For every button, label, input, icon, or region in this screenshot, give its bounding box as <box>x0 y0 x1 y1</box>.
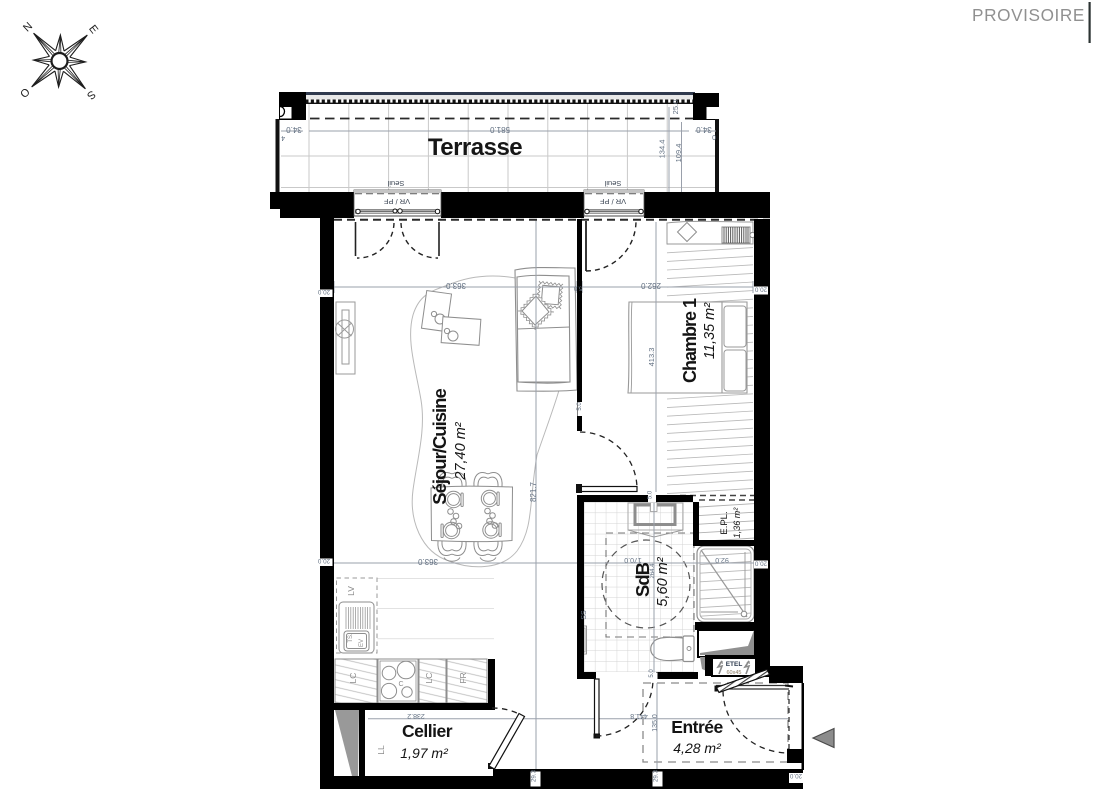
svg-text:Séjour/Cuisine: Séjour/Cuisine <box>429 389 450 505</box>
svg-text:5.0: 5.0 <box>649 669 655 678</box>
svg-text:238.2: 238.2 <box>407 712 425 719</box>
svg-text:29.3: 29.3 <box>531 769 538 782</box>
svg-text:60x45: 60x45 <box>727 670 742 676</box>
svg-text:5.0: 5.0 <box>573 285 582 291</box>
svg-text:29.3: 29.3 <box>653 769 660 782</box>
svg-text:363.0: 363.0 <box>417 557 438 566</box>
svg-text:1,97 m²: 1,97 m² <box>400 745 449 761</box>
svg-text:Entrée: Entrée <box>671 717 723 737</box>
svg-text:5.0: 5.0 <box>648 490 654 499</box>
svg-text:TS.: TS. <box>348 633 354 643</box>
svg-text:LC: LC <box>424 673 434 684</box>
svg-text:134.4: 134.4 <box>658 140 667 159</box>
svg-text:264.4: 264.4 <box>650 563 656 579</box>
svg-text:ETEL: ETEL <box>726 661 743 668</box>
svg-text:4,28 m²: 4,28 m² <box>673 740 722 756</box>
svg-text:Seuil: Seuil <box>387 179 404 188</box>
svg-text:581.0: 581.0 <box>489 125 510 134</box>
svg-text:5,60 m²: 5,60 m² <box>655 556 671 606</box>
svg-text:1,36 m²: 1,36 m² <box>732 507 742 539</box>
svg-text:0: 0 <box>712 133 716 140</box>
svg-text:E.PL.: E.PL. <box>719 511 730 534</box>
svg-text:Chambre 1: Chambre 1 <box>680 298 700 383</box>
svg-text:Terrasse: Terrasse <box>428 134 522 161</box>
svg-text:20.0: 20.0 <box>754 286 767 293</box>
svg-text:FR: FR <box>458 672 468 683</box>
svg-text:20.0: 20.0 <box>754 560 767 567</box>
svg-text:LL: LL <box>376 745 386 755</box>
svg-text:821.7: 821.7 <box>529 481 538 502</box>
svg-text:PROVISOIRE: PROVISOIRE <box>972 5 1085 25</box>
svg-text:363.0: 363.0 <box>445 281 466 290</box>
svg-text:262.0: 262.0 <box>640 281 661 290</box>
svg-text:C: C <box>398 681 403 688</box>
svg-text:11,35 m²: 11,35 m² <box>702 302 718 359</box>
svg-text:VR / PF: VR / PF <box>599 197 626 206</box>
svg-text:LV: LV <box>346 586 356 596</box>
svg-text:20.0: 20.0 <box>789 772 802 779</box>
svg-text:20.0: 20.0 <box>317 557 330 564</box>
svg-text:34.0: 34.0 <box>696 125 712 134</box>
svg-text:441.8: 441.8 <box>630 712 648 719</box>
svg-text:VR / PF: VR / PF <box>383 197 410 206</box>
svg-text:SS: SS <box>581 610 588 620</box>
svg-text:Seuil: Seuil <box>604 179 621 188</box>
svg-text:5.0: 5.0 <box>577 402 583 411</box>
svg-text:25.0: 25.0 <box>671 100 680 115</box>
svg-text:EV: EV <box>359 639 365 647</box>
svg-text:20.0: 20.0 <box>317 288 330 295</box>
svg-text:Cellier: Cellier <box>402 721 453 741</box>
svg-text:109.4: 109.4 <box>674 144 683 163</box>
svg-text:27,40 m²: 27,40 m² <box>453 421 469 480</box>
svg-text:170.0: 170.0 <box>624 556 642 563</box>
svg-text:34.0: 34.0 <box>286 125 302 134</box>
svg-text:92.0: 92.0 <box>715 556 729 563</box>
svg-text:135.0: 135.0 <box>652 714 659 732</box>
svg-text:LC: LC <box>348 673 358 684</box>
svg-text:413.3: 413.3 <box>647 348 656 367</box>
svg-text:4: 4 <box>281 134 285 141</box>
